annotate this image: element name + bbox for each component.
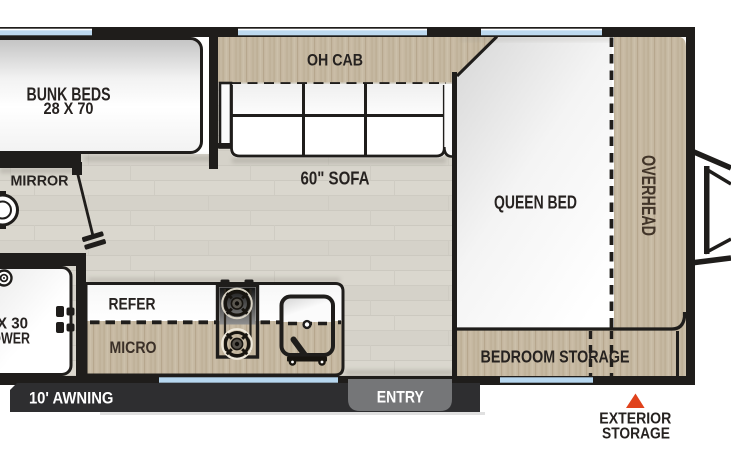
svg-text:10' AWNING: 10' AWNING — [29, 388, 114, 407]
svg-text:STORAGE: STORAGE — [602, 426, 670, 443]
svg-text:OVERHEAD: OVERHEAD — [637, 155, 658, 236]
svg-text:MIRROR: MIRROR — [11, 172, 69, 189]
svg-text:SHOWER: SHOWER — [0, 331, 30, 348]
svg-text:BEDROOM STORAGE: BEDROOM STORAGE — [481, 347, 630, 367]
svg-text:MICRO: MICRO — [110, 338, 157, 357]
svg-text:REFER: REFER — [109, 294, 156, 313]
svg-text:60" SOFA: 60" SOFA — [301, 169, 370, 189]
svg-text:ENTRY: ENTRY — [377, 389, 424, 407]
svg-text:OH CAB: OH CAB — [307, 51, 363, 70]
svg-text:28 X 70: 28 X 70 — [44, 100, 94, 118]
svg-text:QUEEN BED: QUEEN BED — [494, 192, 577, 212]
